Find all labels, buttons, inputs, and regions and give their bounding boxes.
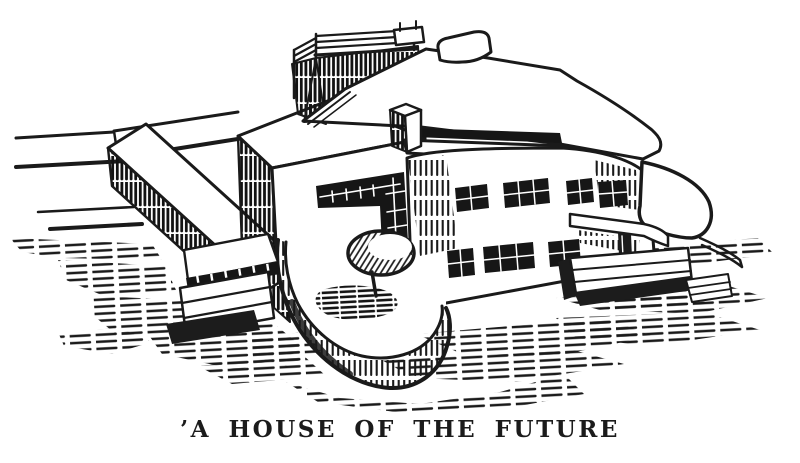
roof-skylight-housing <box>438 32 491 63</box>
chimney-block <box>390 104 421 152</box>
figure-caption: ’A HOUSE OF THE FUTURE <box>0 416 800 443</box>
book-page: ’A HOUSE OF THE FUTURE <box>0 0 800 463</box>
house-illustration <box>0 0 800 412</box>
figure: ’A HOUSE OF THE FUTURE <box>0 0 800 463</box>
